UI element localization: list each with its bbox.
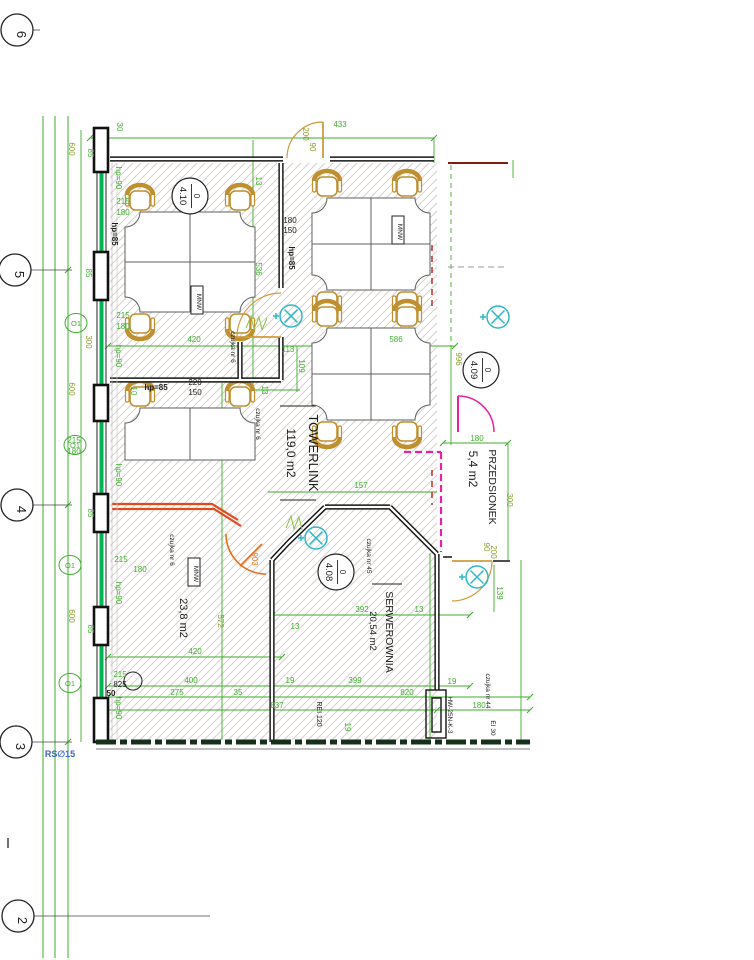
svg-text:hp=90: hp=90 (114, 582, 123, 605)
svg-text:109: 109 (297, 359, 306, 373)
svg-text:180: 180 (283, 216, 297, 225)
svg-text:13: 13 (254, 177, 263, 186)
svg-text:czujka nr 6: czujka nr 6 (168, 534, 175, 566)
floor-plan-svg: O1O1O1O1 MNWMNWMNW 65432 04.1004.0904.08… (0, 0, 754, 960)
svg-text:400: 400 (184, 676, 198, 685)
svg-text:220: 220 (188, 378, 202, 387)
o1-markers: O1O1O1O1 (59, 314, 87, 693)
svg-text:czujka nr 6: czujka nr 6 (254, 408, 261, 440)
svg-text:20,54 m2: 20,54 m2 (367, 611, 378, 651)
svg-text:4.08: 4.08 (323, 563, 334, 582)
svg-text:19: 19 (286, 676, 295, 685)
svg-text:35: 35 (234, 688, 243, 697)
svg-text:90: 90 (308, 143, 317, 152)
svg-text:HW-25N-K-3: HW-25N-K-3 (446, 696, 453, 733)
bottom-wall (96, 742, 530, 749)
svg-text:10: 10 (129, 387, 138, 396)
svg-text:EI 30: EI 30 (489, 720, 496, 736)
svg-text:536: 536 (254, 262, 263, 276)
svg-text:85: 85 (86, 509, 95, 518)
svg-text:6: 6 (14, 31, 29, 38)
svg-text:85: 85 (86, 625, 95, 634)
grid-lines (43, 116, 68, 958)
svg-text:5: 5 (12, 271, 27, 278)
svg-text:113: 113 (282, 345, 295, 354)
svg-text:586: 586 (389, 335, 403, 344)
svg-text:13: 13 (415, 605, 424, 614)
svg-text:REI 120: REI 120 (315, 701, 322, 726)
svg-text:150: 150 (188, 388, 202, 397)
svg-text:TOWERLINK: TOWERLINK (306, 414, 321, 491)
svg-text:85: 85 (84, 269, 93, 278)
svg-text:4.09: 4.09 (468, 361, 479, 380)
floor-plan-canvas: O1O1O1O1 MNWMNWMNW 65432 04.1004.0904.08… (0, 0, 754, 960)
svg-text:PRZEDSIONEK: PRZEDSIONEK (486, 449, 498, 524)
svg-text:hp=85: hp=85 (287, 246, 296, 270)
svg-text:13: 13 (260, 386, 269, 395)
svg-text:4.10: 4.10 (177, 187, 188, 206)
svg-text:180: 180 (67, 447, 81, 456)
svg-text:215: 215 (116, 311, 130, 320)
svg-text:MNW: MNW (396, 224, 403, 241)
svg-text:4: 4 (14, 506, 29, 513)
svg-text:30: 30 (115, 123, 124, 132)
svg-text:903: 903 (250, 552, 259, 566)
svg-text:433: 433 (333, 120, 347, 129)
svg-text:420: 420 (188, 647, 202, 656)
svg-text:0: 0 (483, 368, 492, 373)
svg-text:150: 150 (283, 226, 297, 235)
svg-text:SERWEROWNIA: SERWEROWNIA (383, 591, 395, 672)
svg-text:600: 600 (67, 142, 76, 156)
svg-text:hp=90: hp=90 (114, 697, 123, 720)
svg-text:300: 300 (84, 335, 93, 349)
svg-text:O1: O1 (65, 561, 75, 570)
svg-text:215: 215 (116, 197, 130, 206)
svg-text:215: 215 (113, 670, 127, 679)
svg-text:czujka nr 45: czujka nr 45 (365, 538, 372, 573)
svg-text:19: 19 (343, 723, 352, 732)
svg-text:0: 0 (192, 194, 201, 199)
svg-text:85: 85 (86, 149, 95, 158)
svg-text:3: 3 (13, 743, 28, 750)
svg-text:215: 215 (67, 436, 81, 445)
svg-text:820: 820 (400, 688, 414, 697)
svg-text:180: 180 (133, 565, 147, 574)
svg-text:5,4 m2: 5,4 m2 (466, 451, 480, 488)
svg-text:200: 200 (301, 127, 310, 141)
svg-text:300: 300 (505, 493, 514, 507)
svg-text:275: 275 (170, 688, 184, 697)
svg-text:837: 837 (270, 701, 284, 710)
svg-text:572: 572 (216, 614, 225, 628)
door-swing-przedsionek (458, 396, 494, 432)
svg-text:0: 0 (338, 570, 347, 575)
svg-text:hp=85: hp=85 (110, 222, 119, 246)
svg-text:600: 600 (67, 382, 76, 396)
svg-text:13: 13 (291, 622, 300, 631)
svg-text:200: 200 (489, 545, 498, 559)
svg-text:hp=90: hp=90 (114, 345, 123, 368)
svg-text:180: 180 (470, 434, 484, 443)
svg-text:2: 2 (15, 917, 30, 924)
svg-text:MNW: MNW (192, 566, 199, 583)
svg-text:157: 157 (354, 481, 368, 490)
svg-text:996: 996 (454, 352, 463, 366)
svg-text:hp=90: hp=90 (114, 167, 123, 190)
svg-text:420: 420 (187, 335, 201, 344)
svg-text:hp=90: hp=90 (114, 464, 123, 487)
svg-text:119,0 m2: 119,0 m2 (284, 428, 298, 477)
svg-text:czujka nr 6: czujka nr 6 (229, 331, 236, 363)
svg-text:hp=85: hp=85 (144, 383, 168, 392)
svg-text:180: 180 (116, 322, 130, 331)
svg-text:MNW: MNW (195, 294, 202, 311)
svg-text:399: 399 (348, 676, 362, 685)
svg-text:600: 600 (67, 609, 76, 623)
svg-text:180: 180 (116, 208, 130, 217)
svg-text:23,8 m2: 23,8 m2 (177, 598, 189, 638)
svg-text:19: 19 (448, 677, 457, 686)
svg-text:139: 139 (495, 586, 504, 600)
svg-text:RS∅15: RS∅15 (45, 749, 75, 759)
svg-text:O1: O1 (71, 319, 81, 328)
svg-text:215: 215 (114, 555, 128, 564)
svg-text:O1: O1 (65, 679, 75, 688)
svg-text:825: 825 (113, 680, 127, 689)
svg-text:180: 180 (472, 701, 486, 710)
